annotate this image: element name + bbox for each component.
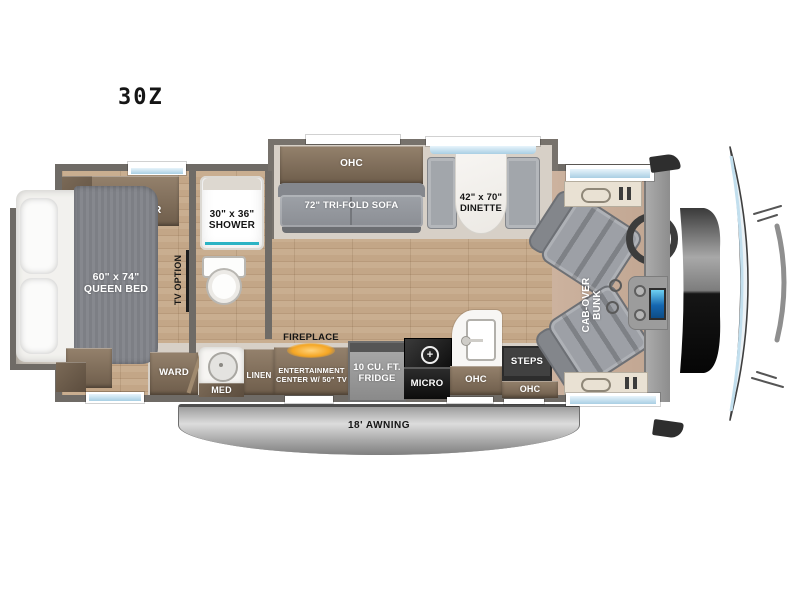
bedroom-top-window [128, 162, 186, 175]
fireplace-glow [287, 343, 335, 358]
med-base: MED [199, 383, 244, 397]
vanity-sink-drain [219, 363, 223, 367]
console-screen [649, 288, 666, 320]
shower-label: 30" x 36" SHOWER [200, 204, 264, 236]
tv-option-label: TV OPTION [171, 240, 185, 320]
front-bumper-arc [777, 226, 784, 340]
kitchen-faucet-spout [469, 339, 483, 342]
fridge-label: 10 CU. FT. FRIDGE [350, 360, 404, 388]
driver-door-panel [564, 181, 642, 207]
steps-label: STEPS [504, 355, 550, 369]
queen-bed-label: 60" x 74" QUEEN BED [74, 266, 158, 300]
bed-foot-cabinet [56, 362, 86, 392]
ohc-kitchen-label: OHC [450, 373, 502, 387]
pillow [20, 278, 58, 354]
front-cap [660, 130, 800, 470]
overhead-cabinet-entry: OHC [502, 381, 558, 398]
window-glass [570, 396, 656, 404]
console-knob [634, 309, 646, 321]
shower: 30" x 36" SHOWER [200, 176, 264, 250]
microwave: MICRO [404, 367, 450, 399]
slideout-window [306, 135, 400, 144]
fireplace-label: FIREPLACE [278, 332, 344, 344]
pillow [20, 198, 58, 274]
door-hinge [627, 187, 631, 200]
cooktop: + [404, 338, 452, 369]
linen-cabinet: LINEN [244, 349, 274, 395]
cupholder [609, 279, 622, 292]
bottom-window [285, 396, 333, 403]
ohc-entry-label: OHC [502, 383, 558, 396]
bottom-window [447, 397, 493, 403]
toilet-bowl [206, 268, 242, 305]
trifold-sofa: 72" TRI-FOLD SOFA [278, 183, 425, 233]
sofa-label: 72" TRI-FOLD SOFA [278, 197, 425, 215]
awning: 18' AWNING [178, 404, 580, 455]
door-hinge [619, 187, 623, 200]
dinette-table: 42" x 70" DINETTE [455, 152, 507, 234]
bathroom-wall-left [189, 171, 196, 353]
overhead-cabinet-living: OHC [280, 146, 423, 184]
entry-door-panel [564, 372, 648, 395]
bottom-window [504, 399, 544, 404]
ohc-living-label: OHC [280, 155, 423, 173]
windshield-arc [730, 147, 748, 420]
overhead-cabinet-kitchen: OHC [450, 366, 502, 395]
refrigerator-top [350, 343, 404, 352]
floorplan-canvas: DRESSER 60" x 74" QUEEN BED WARD TV OPTI… [0, 0, 800, 600]
med-cabinet [199, 347, 244, 384]
floorplan-title: 30Z [118, 85, 198, 110]
med-label: MED [199, 384, 244, 396]
window-glass [89, 394, 141, 401]
door-handle [581, 188, 611, 203]
shower-head-wall [203, 178, 261, 190]
entertainment-label: ENTERTAINMENT CENTER W/ 50" TV [274, 363, 349, 389]
burner-icon: + [421, 346, 439, 364]
entry-door-window [566, 393, 660, 406]
shower-threshold [205, 242, 259, 245]
vanity-sink [208, 352, 238, 382]
cupholder [606, 301, 619, 314]
awning-label: 18' AWNING [179, 419, 579, 433]
bathroom-wall-right [265, 171, 272, 339]
console-knob [634, 285, 646, 297]
sofa-base [282, 227, 421, 233]
slideout-window [426, 137, 540, 146]
micro-label: MICRO [404, 377, 450, 391]
hood-panel [680, 208, 720, 373]
center-console [628, 276, 668, 330]
driver-door-window [566, 165, 654, 181]
dinette-label: 42" x 70" DINETTE [450, 189, 512, 219]
door-handle [581, 378, 611, 392]
window-glass [570, 169, 650, 178]
refrigerator: 10 CU. FT. FRIDGE [348, 341, 406, 402]
door-hinge [633, 377, 637, 389]
window-glass [131, 168, 183, 174]
bedroom-bottom-window [86, 392, 144, 403]
linen-label: LINEN [240, 369, 278, 383]
cab-over-bunk-label: CAB-OVER BUNK [579, 260, 605, 350]
kitchen-counter [452, 310, 502, 368]
queen-bed-mattress: 60" x 74" QUEEN BED [74, 186, 158, 364]
dinette-window-glass [430, 146, 536, 154]
door-hinge [625, 377, 629, 389]
